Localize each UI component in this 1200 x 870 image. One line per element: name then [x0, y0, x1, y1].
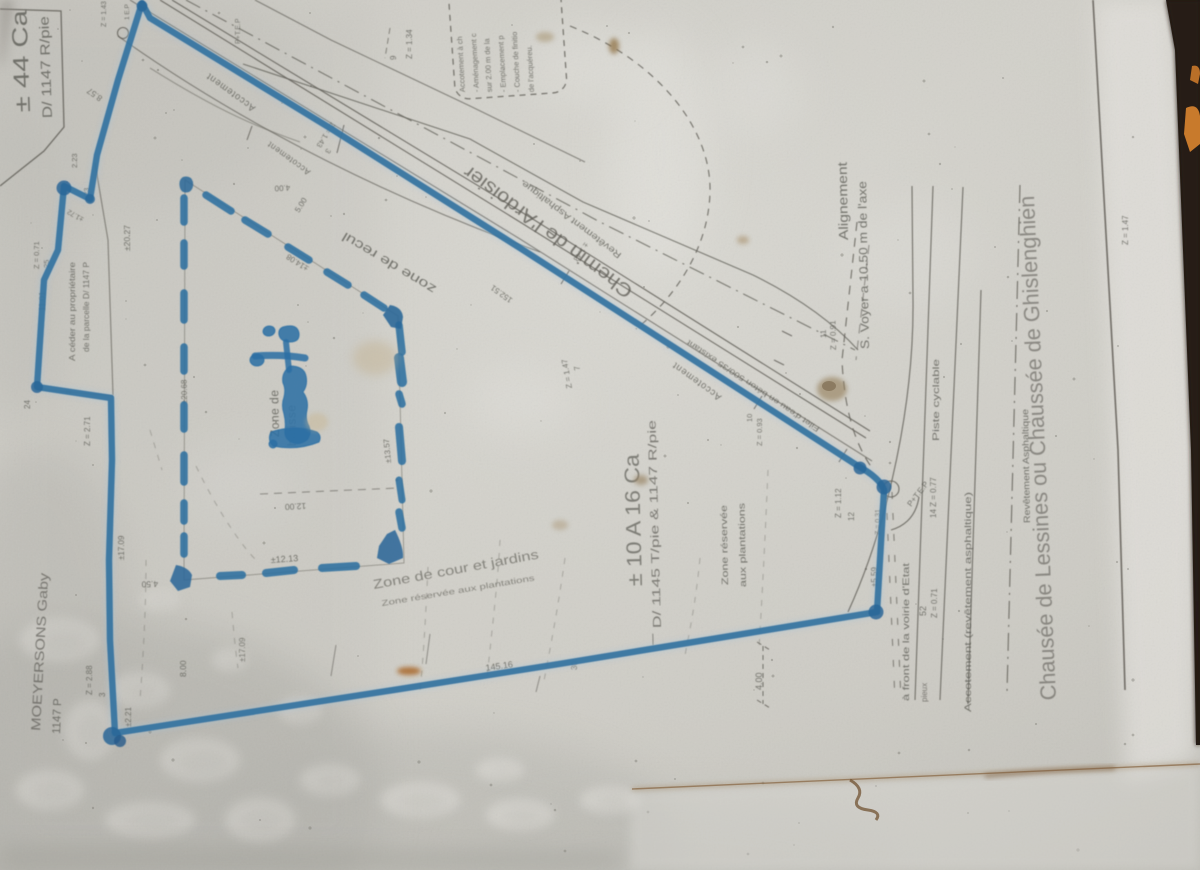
- svg-text:1 E.P: 1 E.P: [124, 4, 131, 20]
- svg-text:±20.27: ±20.27: [122, 225, 132, 251]
- svg-text:24: 24: [23, 400, 32, 409]
- svg-text:±20.68: ±20.68: [180, 379, 189, 404]
- svg-text:11: 11: [819, 329, 828, 338]
- svg-text:8.00: 8.00: [178, 660, 188, 677]
- svg-text:±12.13: ±12.13: [270, 553, 298, 565]
- svg-text:Z = 1.43: Z = 1.43: [101, 1, 108, 27]
- svg-text:4.00: 4.00: [754, 672, 764, 690]
- svg-text:52: 52: [918, 606, 928, 616]
- svg-text:Z = 0.91: Z = 0.91: [828, 320, 838, 350]
- svg-text:Z = 0.71: Z = 0.71: [930, 588, 939, 618]
- svg-text:12.00: 12.00: [284, 501, 306, 512]
- svg-text:Z = 1.47: Z = 1.47: [1121, 215, 1130, 245]
- svg-text:Z = 0.71: Z = 0.71: [32, 241, 41, 269]
- svg-text:± 44 Ca: ± 44 Ca: [6, 9, 35, 113]
- svg-text:10: 10: [745, 414, 754, 422]
- svg-text:12: 12: [847, 512, 856, 521]
- svg-text:Z = 1.34: Z = 1.34: [405, 29, 414, 59]
- svg-text:1147 P: 1147 P: [51, 698, 64, 734]
- svg-text:± 10 A 16 Ca: ± 10 A 16 Ca: [621, 454, 647, 587]
- svg-text:Z = 2.88: Z = 2.88: [85, 665, 94, 695]
- svg-text:à front de la voirie d'Etat: à front de la voirie d'Etat: [901, 562, 911, 701]
- svg-text:Z = 1.12: Z = 1.12: [834, 488, 843, 518]
- svg-text:Alignement: Alignement: [835, 162, 851, 241]
- svg-text:de la parcelle D/ 1147 P: de la parcelle D/ 1147 P: [81, 262, 91, 352]
- svg-text:Z = 0.93: Z = 0.93: [755, 418, 764, 446]
- svg-text:Accotement (revêtement asphalt: Accotement (revêtement asphaltique): [963, 492, 974, 712]
- svg-text:±2.21: ±2.21: [124, 706, 133, 727]
- svg-text:2.23: 2.23: [70, 153, 79, 168]
- svg-text:pieux: pieux: [920, 683, 929, 702]
- svg-text:Zone réservée: Zone réservée: [719, 505, 730, 585]
- svg-text:P+T.E.P: P+T.E.P: [235, 18, 242, 44]
- svg-text:4.50: 4.50: [141, 579, 158, 590]
- svg-text:9: 9: [389, 55, 398, 60]
- svg-text:4.00: 4.00: [274, 183, 291, 193]
- svg-text:Z = 2.71: Z = 2.71: [83, 416, 92, 446]
- svg-text:±17.09: ±17.09: [117, 535, 126, 560]
- svg-text:3: 3: [98, 692, 107, 697]
- svg-text:S. Voyer a 10.50 m de l'axe: S. Voyer a 10.50 m de l'axe: [855, 181, 872, 350]
- svg-text:aux plantations: aux plantations: [737, 502, 748, 587]
- svg-text:±17.09: ±17.09: [238, 637, 247, 662]
- svg-text:14 Z = 0.77: 14 Z = 0.77: [929, 477, 938, 518]
- svg-text:Piste cyclable: Piste cyclable: [931, 359, 942, 441]
- svg-text:—: —: [647, 633, 659, 645]
- svg-text:A céder au propriétaire: A céder au propriétaire: [67, 262, 77, 361]
